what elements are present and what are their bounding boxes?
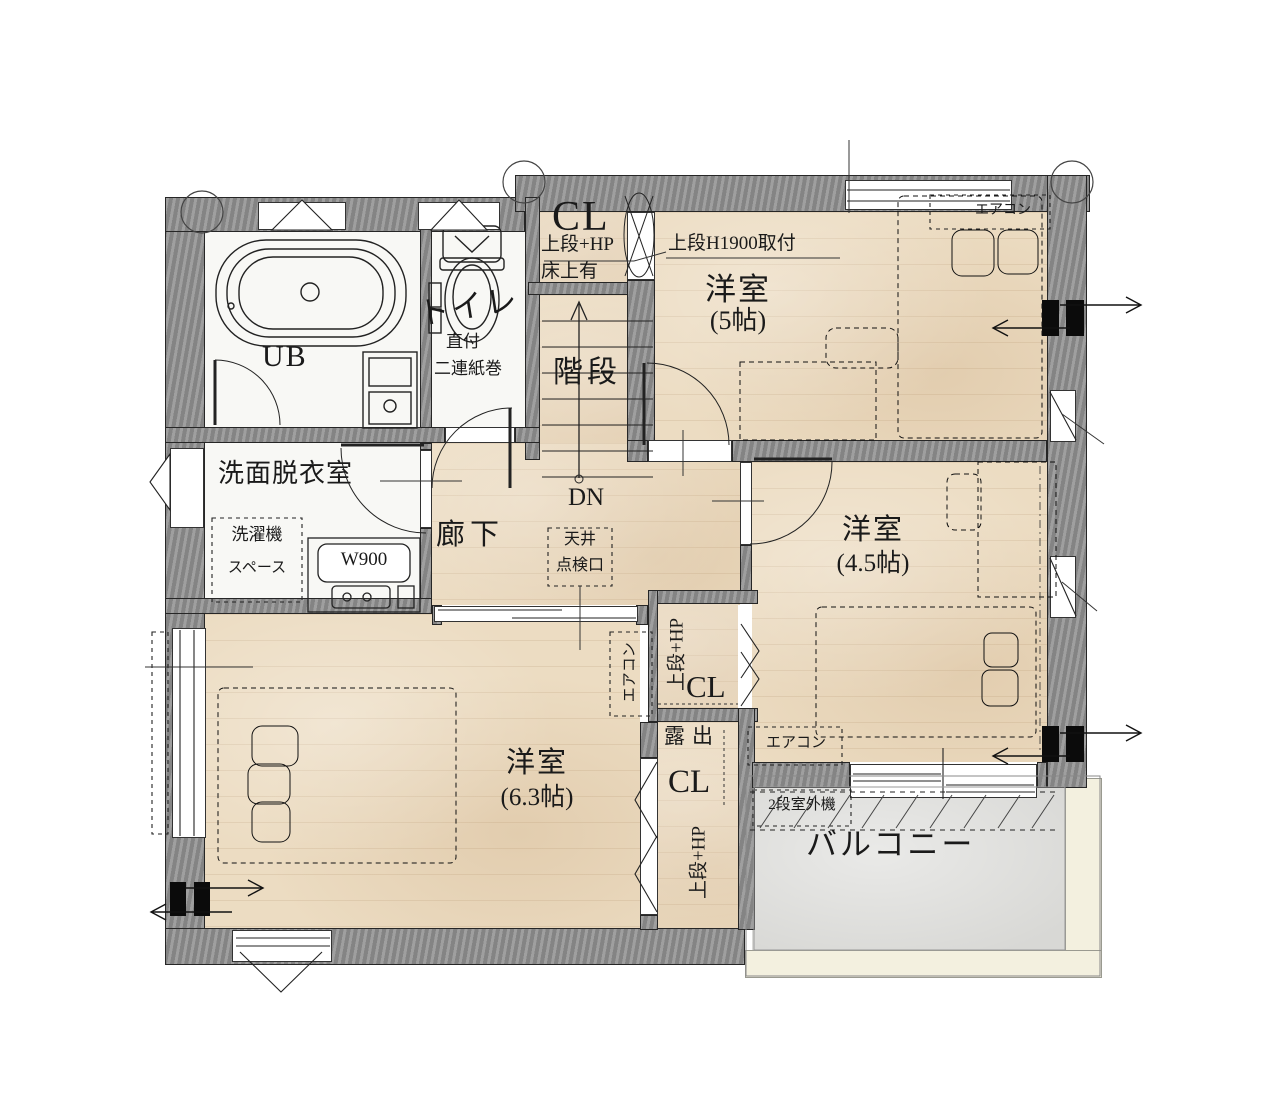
closet-mid-label: CL [686,670,726,704]
wall-left [165,197,205,965]
ceiling-hatch-label-2: 点検口 [546,557,614,575]
room-label-63jo: 洋室 [487,748,587,780]
toilet-note-1: 直付 [446,333,480,352]
room-45jo-floor [752,462,1047,762]
aircon-label-5jo: エアコン [975,203,1031,218]
closet-bottom-note: 上段+HP [690,814,711,910]
stairs-direction-label: DN [560,484,612,512]
room-label-45jo: 洋室 [823,515,923,547]
wall-5jo-bottom-left [627,440,648,462]
room-size-63jo: (6.3帖) [473,784,601,812]
outdoor-unit-label: 2段室外機 [754,797,850,814]
closet-mid-note: 上段+HP [668,606,689,702]
room-size-45jo: (4.5帖) [809,550,937,578]
room-label-5jo: 洋室 [690,273,786,307]
wall-toilet-hall [515,427,540,443]
window-63jo-bottom [232,930,332,962]
room-ub-floor [205,232,420,430]
balcony-rail-bottom [745,950,1102,978]
vent-right-top-1 [1042,300,1059,336]
wall-clmid-left [648,590,658,722]
window-45jo-right [1050,556,1076,618]
stairs-label: 階段 [532,356,642,389]
room-toilet-floor [432,232,525,430]
wall-toilet-stairs [525,197,540,460]
room-label-ub: UB [262,340,308,373]
accordion-gap-63-cl [640,758,658,915]
wall-45-balcony-b [1037,762,1047,788]
vent-right-mid-2 [1066,726,1084,762]
room-label-washroom: 洗面脱衣室 [218,460,353,489]
room-size-5jo: (5帖) [686,307,790,336]
wall-clbottom-right [738,708,755,930]
balcony-rail-right [1065,778,1102,978]
window-balcony-slider [850,764,1037,798]
closet-top-note-1: 上段+HP [541,235,614,256]
washer-label-2: スペース [216,560,298,577]
washer-label-1: 洗濯機 [216,526,298,545]
aircon-label-63jo: エアコン [622,630,639,714]
window-ub-top-2 [418,202,500,230]
vent-right-mid-1 [1042,726,1059,762]
slider-hall-63jo [434,606,638,622]
closet-bottom-label: CL [668,764,710,800]
room-label-hallway: 廊下 [436,520,504,552]
vanity-label: W900 [318,550,410,571]
floor-plan: UB トイレ 直付 二連紙巻 CL 上段+HP 床上有 上段H1900取付 洋室… [0,0,1264,1120]
window-5jo-right [1050,390,1076,442]
wall-5jo-bottom [732,440,1047,462]
wall-clbottom-left-a [640,722,658,758]
room5-shelf-note: 上段H1900取付 [668,234,796,255]
balcony-label: バルコニー [806,828,975,862]
aircon-label-45jo: エアコン [757,735,835,752]
ceiling-hatch-label-1: 天井 [550,531,610,549]
folding-gap-cltop [627,212,655,280]
wall-hall-45 [740,545,752,592]
window-63jo-left [172,628,206,838]
window-ub-top-1 [258,202,346,230]
vent-right-top-2 [1066,300,1084,336]
wall-right [1047,175,1087,788]
toilet-note-2: 二連紙巻 [434,360,502,379]
wall-washroom-63 [165,598,432,614]
window-washroom-left [170,448,204,528]
wall-washroom-hall-a [420,443,432,450]
wall-45-balcony-a [752,762,850,788]
vent-left-2 [194,882,210,916]
vent-left-1 [170,882,186,916]
door-gap-toilet [445,427,515,443]
door-gap-45jo [740,462,752,545]
door-gap-washroom [420,450,432,528]
closet-top-note-2: 床上有 [541,262,598,283]
pipe-note-label: 露出 [664,725,720,748]
door-gap-5jo [648,440,732,462]
wall-clbottom-left-b [640,915,658,930]
wall-clmid-top [648,590,758,604]
wall-ub-washroom [165,427,445,443]
